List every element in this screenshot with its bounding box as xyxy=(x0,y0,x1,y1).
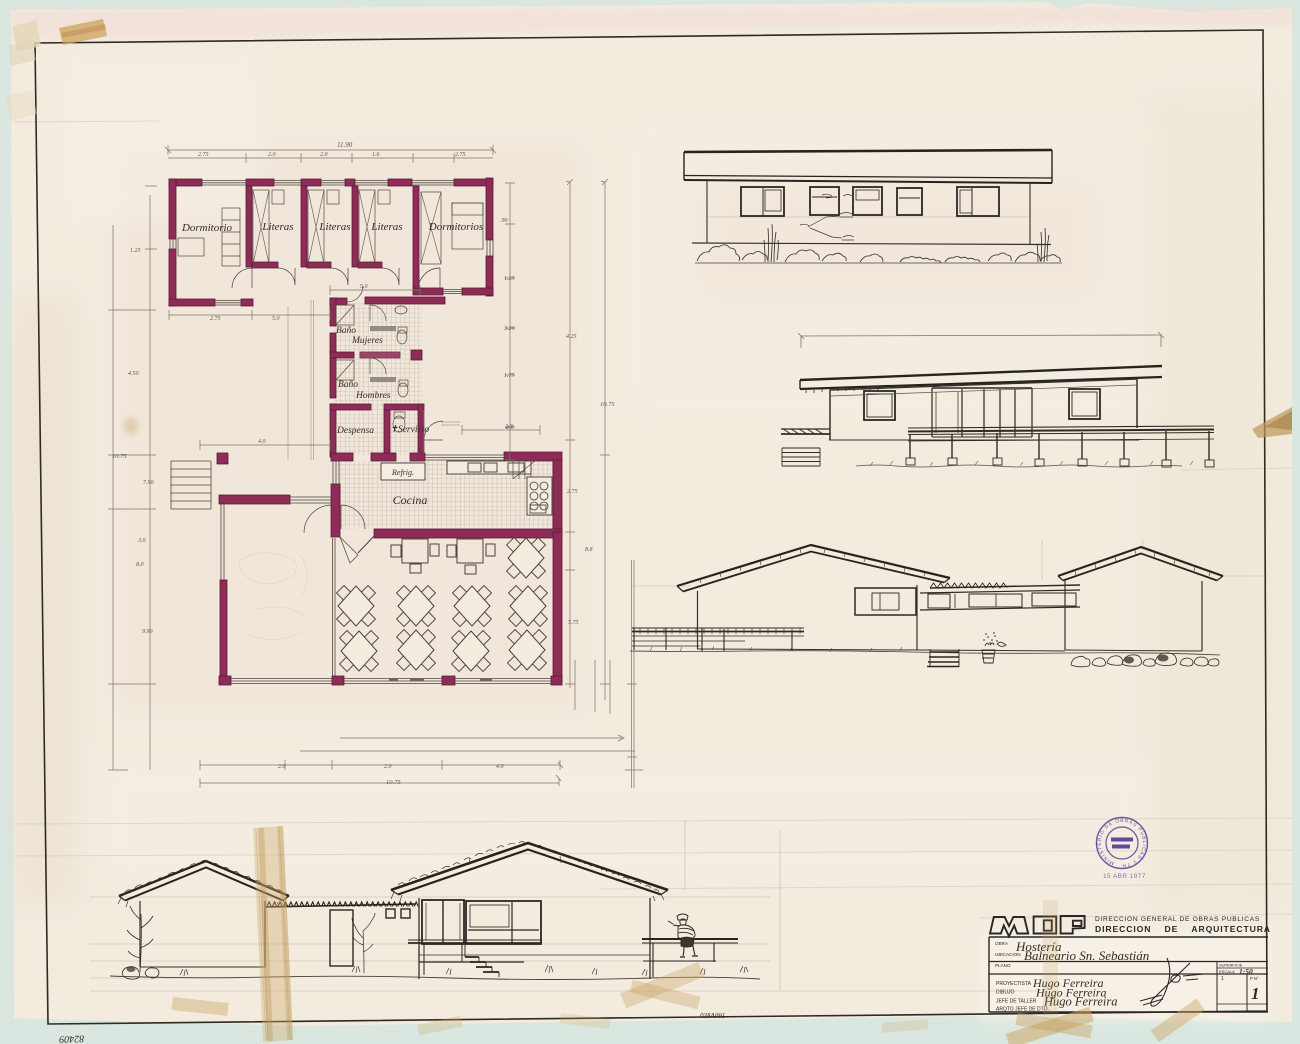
svg-text:2.0: 2.0 xyxy=(278,764,286,770)
svg-text:Baño: Baño xyxy=(338,380,358,390)
svg-text:DIRECCION DE ARQUITECTUR: DIRECCION DE ARQUITECTURA xyxy=(1095,924,1271,934)
svg-text:✝Servicio: ✝Servicio xyxy=(390,425,429,435)
svg-text:Hombres: Hombres xyxy=(355,391,391,401)
svg-text:Despensa: Despensa xyxy=(336,426,374,436)
svg-text:UBICACION: UBICACION xyxy=(995,952,1021,957)
svg-text:7.90: 7.90 xyxy=(143,480,154,486)
svg-text:82409: 82409 xyxy=(59,1033,84,1044)
svg-text:4.0: 4.0 xyxy=(258,438,266,445)
svg-text:4.0: 4.0 xyxy=(496,763,504,770)
svg-text:1.6: 1.6 xyxy=(372,152,380,158)
svg-text:2.75: 2.75 xyxy=(567,489,578,495)
svg-text:5.0: 5.0 xyxy=(360,284,368,290)
svg-text:Cocina: Cocina xyxy=(393,493,428,507)
svg-text:15 ABR 1977: 15 ABR 1977 xyxy=(1103,873,1146,880)
svg-text:10.75: 10.75 xyxy=(386,779,401,786)
svg-text:Mujeres: Mujeres xyxy=(351,336,383,346)
svg-text:PROYECTISTA: PROYECTISTA xyxy=(996,981,1032,987)
svg-text:2.0: 2.0 xyxy=(268,152,276,158)
svg-text:JEFE DE TALLER: JEFE DE TALLER xyxy=(996,999,1037,1005)
svg-text:2.0: 2.0 xyxy=(320,152,328,158)
svg-text:2.75: 2.75 xyxy=(198,152,209,158)
svg-text:10.75: 10.75 xyxy=(600,401,615,408)
svg-text:Literas: Literas xyxy=(261,221,293,233)
svg-text:Baño: Baño xyxy=(336,326,356,336)
svg-text:1.25: 1.25 xyxy=(130,248,141,254)
svg-text:.90: .90 xyxy=(500,218,508,224)
svg-text:1.25: 1.25 xyxy=(504,276,515,282)
svg-text:10.75: 10.75 xyxy=(112,453,127,460)
svg-text:Balneario Sn. Sebastián: Balneario Sn. Sebastián xyxy=(1024,948,1149,963)
svg-text:3.20: 3.20 xyxy=(503,326,515,332)
svg-text:5.75: 5.75 xyxy=(568,620,579,626)
svg-text:11.90: 11.90 xyxy=(337,141,353,149)
svg-text:P N°: P N° xyxy=(1250,976,1259,981)
svg-text:2.0: 2.0 xyxy=(505,424,513,430)
svg-text:2.75: 2.75 xyxy=(210,316,221,322)
svg-text:DIBUJO: DIBUJO xyxy=(996,990,1014,996)
svg-text:ESCALA: ESCALA xyxy=(1219,969,1235,974)
svg-text:PLANO: PLANO xyxy=(995,963,1011,968)
svg-text:Literas: Literas xyxy=(318,221,350,233)
svg-text:2.0: 2.0 xyxy=(384,764,392,770)
svg-text:Dormitorios: Dormitorios xyxy=(428,221,483,233)
svg-text:038A091: 038A091 xyxy=(700,1012,725,1020)
svg-text:1: 1 xyxy=(1221,976,1224,982)
svg-text:5.0: 5.0 xyxy=(272,316,280,322)
svg-text:1:50: 1:50 xyxy=(1239,967,1253,976)
svg-text:Refrig.: Refrig. xyxy=(391,468,414,477)
svg-text:8.0: 8.0 xyxy=(136,562,144,568)
svg-text:Dormitorio: Dormitorio xyxy=(181,222,233,234)
svg-text:Literas: Literas xyxy=(370,221,402,233)
svg-text:9.90: 9.90 xyxy=(142,629,153,635)
svg-text:4.50: 4.50 xyxy=(128,370,139,377)
svg-text:DIRECCION GENERAL DE OBRAS: DIRECCION GENERAL DE OBRAS PUBLICAS xyxy=(1095,916,1260,923)
svg-text:2.75: 2.75 xyxy=(455,152,466,158)
svg-text:8.8: 8.8 xyxy=(585,547,593,553)
svg-text:1: 1 xyxy=(1251,984,1260,1003)
svg-text:3.0: 3.0 xyxy=(137,538,146,544)
svg-text:ARQTO JEFE DE DTO.: ARQTO JEFE DE DTO. xyxy=(996,1007,1049,1013)
svg-text:1.75: 1.75 xyxy=(504,373,515,379)
svg-text:4.25: 4.25 xyxy=(566,333,577,340)
svg-text:OBRA: OBRA xyxy=(995,941,1009,946)
